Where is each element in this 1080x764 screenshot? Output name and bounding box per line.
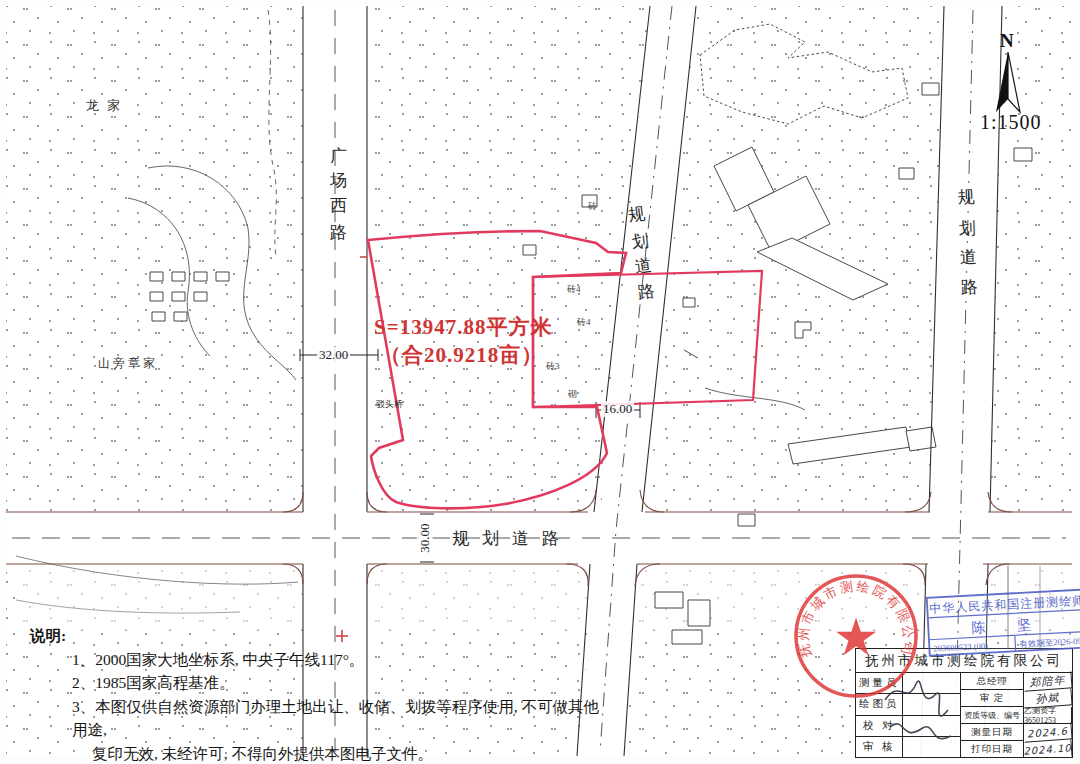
value-approver: 孙斌 bbox=[1023, 688, 1072, 708]
building-label-brick3: 砖3 bbox=[546, 360, 560, 373]
parcel-area-mu-label: （合20.9218亩） bbox=[380, 341, 543, 369]
role-surveyor: 测量员 bbox=[856, 673, 903, 694]
dimension-diagonal-road: 16.00 bbox=[601, 401, 634, 417]
title-block-value-column: 郑陪年 孙斌 乙测资字36501253 2024.6 2024.10 bbox=[1024, 673, 1072, 758]
road-label-planned-right: 规划道路 bbox=[954, 175, 981, 296]
road-label-planned-bottom: 规划道路 bbox=[452, 527, 572, 550]
field-general-manager: 总经理 bbox=[961, 673, 1024, 690]
title-block-table: 抚州市城市测绘院有限公司 测量员 绘图员 校 对 审 核 总经理 审 定 资质等… bbox=[855, 648, 1073, 758]
place-label-bridge: 驳头桥 bbox=[376, 398, 403, 411]
north-label: N bbox=[1000, 30, 1014, 52]
field-license-no: 资质等级、编号 bbox=[961, 707, 1024, 724]
survey-map-page: ··· ··· S=13947.88平方米 （合20.9218亩） 广场西路 规… bbox=[0, 0, 1080, 764]
company-name: 抚州市城市测绘院有限公司 bbox=[856, 649, 1072, 673]
title-block-role-column: 测量员 绘图员 校 对 审 核 bbox=[856, 673, 903, 758]
value-license-no: 乙测资字36501253 bbox=[1024, 707, 1072, 724]
building-label-brick4a: 砖4 bbox=[567, 283, 581, 296]
building-label-brick: 砖 bbox=[588, 200, 597, 213]
road-label-guangchang-west: 广场西路 bbox=[327, 132, 350, 236]
place-label-shanpang: 山旁章家 bbox=[98, 355, 158, 372]
cropped-top-text: ··· ··· bbox=[508, 0, 658, 5]
field-survey-date: 测量日期 bbox=[961, 724, 1024, 741]
parcel-area-label: S=13947.88平方米 bbox=[374, 313, 552, 341]
field-approver: 审 定 bbox=[961, 690, 1024, 707]
title-block-signature-column bbox=[903, 673, 960, 758]
role-reviewer: 审 核 bbox=[856, 737, 903, 758]
note-item-2: 2、1985国家高程基准。 bbox=[30, 671, 600, 695]
role-draftsman: 绘图员 bbox=[856, 694, 903, 715]
place-label-longjia: 龙家 bbox=[86, 97, 128, 115]
field-print-date: 打印日期 bbox=[961, 741, 1024, 758]
dimension-bottom-road: 30.00 bbox=[417, 521, 433, 554]
note-item-3-continued: 复印无效, 未经许可, 不得向外提供本图电子文件。 bbox=[30, 742, 600, 764]
scale-label: 1:1500 bbox=[980, 111, 1042, 134]
title-block-field-column: 总经理 审 定 资质等级、编号 测量日期 打印日期 bbox=[961, 673, 1024, 758]
notes-block: 说明: 1、2000国家大地坐标系, 中央子午线117°。 2、1985国家高程… bbox=[30, 624, 600, 764]
note-item-3: 3、本图仅供自然资源部门办理土地出让、收储、划拨等程序使用, 不可做其他用途, bbox=[30, 695, 600, 742]
notes-title: 说明: bbox=[30, 624, 600, 648]
role-checker: 校 对 bbox=[856, 716, 903, 737]
building-label-brick4b: 砖4 bbox=[577, 316, 591, 329]
building-label-masonry: 砌 bbox=[568, 388, 577, 401]
value-print-date: 2024.10 bbox=[1023, 739, 1072, 759]
dimension-west-road: 32.00 bbox=[317, 347, 350, 363]
note-item-1: 1、2000国家大地坐标系, 中央子午线117°。 bbox=[30, 648, 600, 672]
